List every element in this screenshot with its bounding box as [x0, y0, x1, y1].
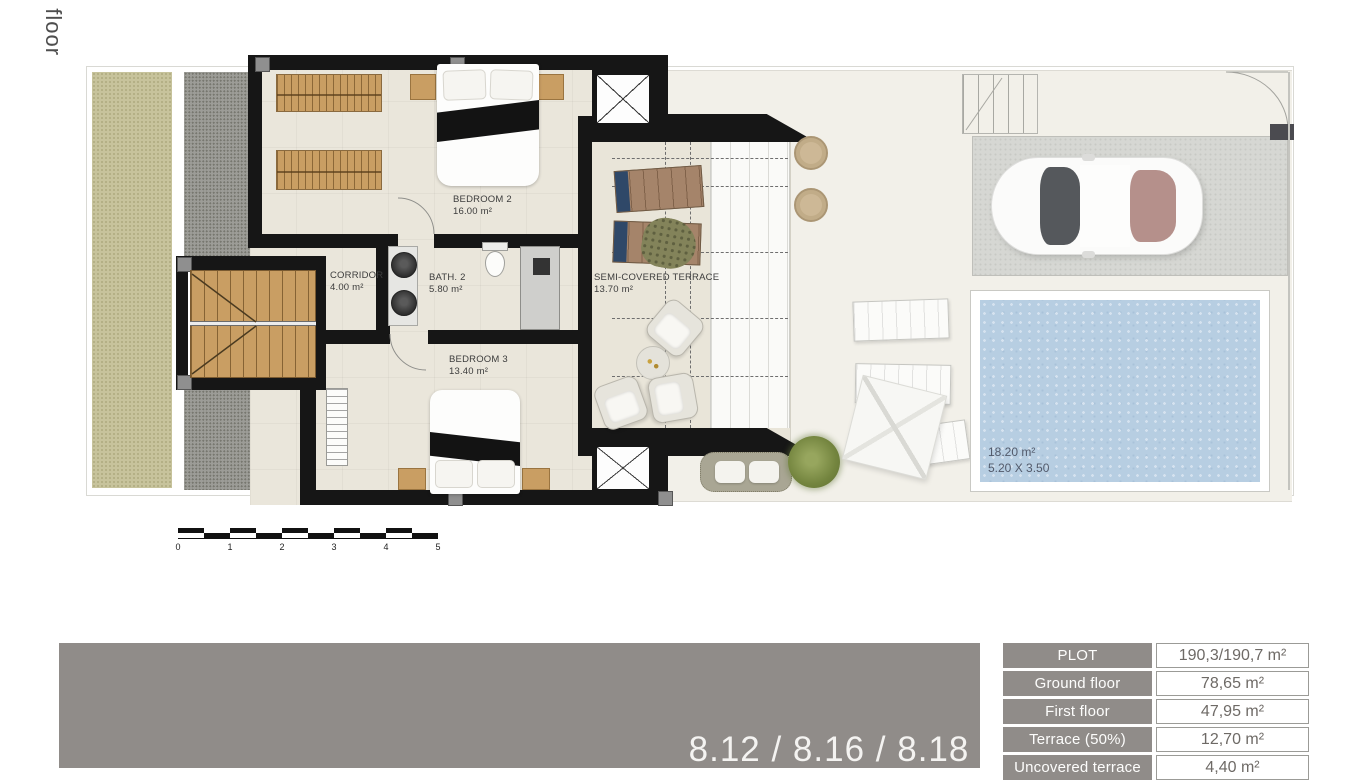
room-area: 16.00 m²: [453, 206, 512, 218]
scale-segment: [178, 528, 204, 533]
sink-basin: [391, 290, 417, 316]
wall-segment: [176, 256, 326, 270]
sun-lounger-brown: [614, 165, 705, 213]
car-mirror: [1082, 251, 1095, 258]
sun-lounger-white: [852, 298, 949, 341]
sofa-cushion: [749, 461, 779, 483]
wall-segment: [652, 55, 668, 142]
lounger-headrest: [615, 171, 631, 212]
lounger-headrest: [613, 222, 627, 262]
door-arc-bedroom2: [398, 198, 434, 234]
row-label: Ground floor: [1003, 671, 1152, 696]
first-floor-plan-page: { "page": { "vertical_title": "t floor" …: [0, 0, 1366, 768]
nightstand: [410, 74, 436, 100]
car-roof: [1080, 165, 1130, 247]
gate-swing-arc: [1226, 70, 1290, 130]
row-label: Terrace (50%): [1003, 727, 1152, 752]
pillow: [489, 69, 533, 100]
gate-post: [1270, 124, 1294, 140]
gravel-patch-top: [184, 72, 254, 258]
pool-dimensions: 5.20 X 3.50: [988, 460, 1049, 476]
area-summary-table: PLOT 190,3/190,7 m² Ground floor 78,65 m…: [1003, 643, 1309, 783]
room-name: BATH. 2: [429, 272, 466, 284]
bed-bedroom2: [437, 64, 539, 186]
table-row: First floor 47,95 m²: [1003, 699, 1309, 724]
pillow: [442, 69, 486, 100]
scale-segment: [230, 528, 256, 533]
bed-bedroom3: [430, 390, 520, 494]
column-post: [255, 57, 270, 72]
unit-numbers: 8.12 / 8.16 / 8.18: [659, 730, 999, 770]
toilet: [482, 242, 508, 251]
row-value: 12,70 m²: [1156, 727, 1309, 752]
car-top-view: [992, 158, 1202, 254]
wall-segment: [578, 116, 592, 456]
car-mirror: [1082, 154, 1095, 161]
scale-segment: [282, 528, 308, 533]
scale-tick: 2: [277, 542, 287, 552]
linen-shelf: [326, 388, 348, 466]
room-label-bath2: BATH. 2 5.80 m²: [429, 272, 466, 297]
shaft-box-bottom: [592, 442, 654, 494]
room-area: 13.70 m²: [594, 284, 719, 296]
scale-bar: 0 1 2 3 4 5: [176, 526, 442, 554]
unit-banner: 8.12 / 8.16 / 8.18: [59, 643, 980, 768]
car-rear-window: [1130, 170, 1176, 242]
nightstand: [398, 468, 426, 490]
room-label-terrace: SEMI-COVERED TERRACE 13.70 m²: [594, 272, 719, 297]
bed-blanket: [437, 100, 539, 142]
rattan-chair: [794, 136, 828, 170]
pool-label: 18.20 m² 5.20 X 3.50: [988, 444, 1049, 476]
scale-tick: 4: [381, 542, 391, 552]
room-area: 4.00 m²: [330, 282, 383, 294]
scale-tick: 0: [173, 542, 183, 552]
sink-basin: [391, 252, 417, 278]
row-label: First floor: [1003, 699, 1152, 724]
room-name: CORRIDOR: [330, 270, 383, 282]
table-row: PLOT 190,3/190,7 m²: [1003, 643, 1309, 668]
scale-tick: 3: [329, 542, 339, 552]
chair-cushion: [653, 381, 684, 417]
scale-segment: [386, 528, 412, 533]
row-value: 190,3/190,7 m²: [1156, 643, 1309, 668]
room-area: 13.40 m²: [449, 366, 508, 378]
row-value: 78,65 m²: [1156, 671, 1309, 696]
wardrobe-top: [276, 74, 382, 112]
scale-tick: 5: [433, 542, 443, 552]
steps-diagonal: [962, 74, 1038, 134]
table-row: Ground floor 78,65 m²: [1003, 671, 1309, 696]
rattan-chair: [794, 188, 828, 222]
room-label-corridor: CORRIDOR 4.00 m²: [330, 270, 383, 295]
room-name: BEDROOM 2: [453, 194, 512, 206]
row-value: 47,95 m²: [1156, 699, 1309, 724]
armchair: [646, 371, 699, 424]
sofa-cushion: [715, 461, 745, 483]
scale-segment: [334, 528, 360, 533]
terrace-skylight-strip: [710, 142, 790, 428]
row-label: PLOT: [1003, 643, 1152, 668]
pergola-dash-line: [612, 158, 788, 159]
wall-segment: [300, 376, 316, 505]
outdoor-sofa: [700, 452, 792, 492]
pergola-dash-line: [612, 376, 788, 377]
nightstand: [522, 468, 550, 490]
room-label-bedroom2: BEDROOM 2 16.00 m²: [453, 194, 512, 219]
scale-baseline: [178, 538, 438, 539]
table-row: Terrace (50%) 12,70 m²: [1003, 727, 1309, 752]
wall-segment: [176, 256, 188, 390]
floor-title-vertical: t floor: [40, 0, 66, 56]
scale-tick: 1: [225, 542, 235, 552]
nightstand: [538, 74, 564, 100]
shower-head: [533, 258, 550, 275]
shaft-box-top: [592, 70, 654, 128]
garden-strip: [92, 72, 172, 488]
room-label-bedroom3: BEDROOM 3 13.40 m²: [449, 354, 508, 379]
wardrobe-bottom: [276, 150, 382, 190]
staircase-break-lines: [190, 270, 316, 378]
pillow: [477, 460, 515, 488]
boundary-fence: [1288, 72, 1290, 490]
plant: [788, 436, 840, 488]
wall-segment: [428, 330, 580, 344]
column-post: [658, 491, 673, 506]
pillow: [435, 460, 473, 488]
door-arc-bedroom3: [390, 334, 426, 370]
pool-area: 18.20 m²: [988, 444, 1049, 460]
room-area: 5.80 m²: [429, 284, 466, 296]
car-windshield: [1040, 167, 1080, 245]
chair-cushion: [603, 389, 642, 424]
room-name: BEDROOM 3: [449, 354, 508, 366]
room-name: SEMI-COVERED TERRACE: [594, 272, 719, 284]
coffee-table: [636, 346, 670, 380]
wall-segment: [248, 55, 262, 248]
sun-lounger-brown: [612, 220, 701, 265]
